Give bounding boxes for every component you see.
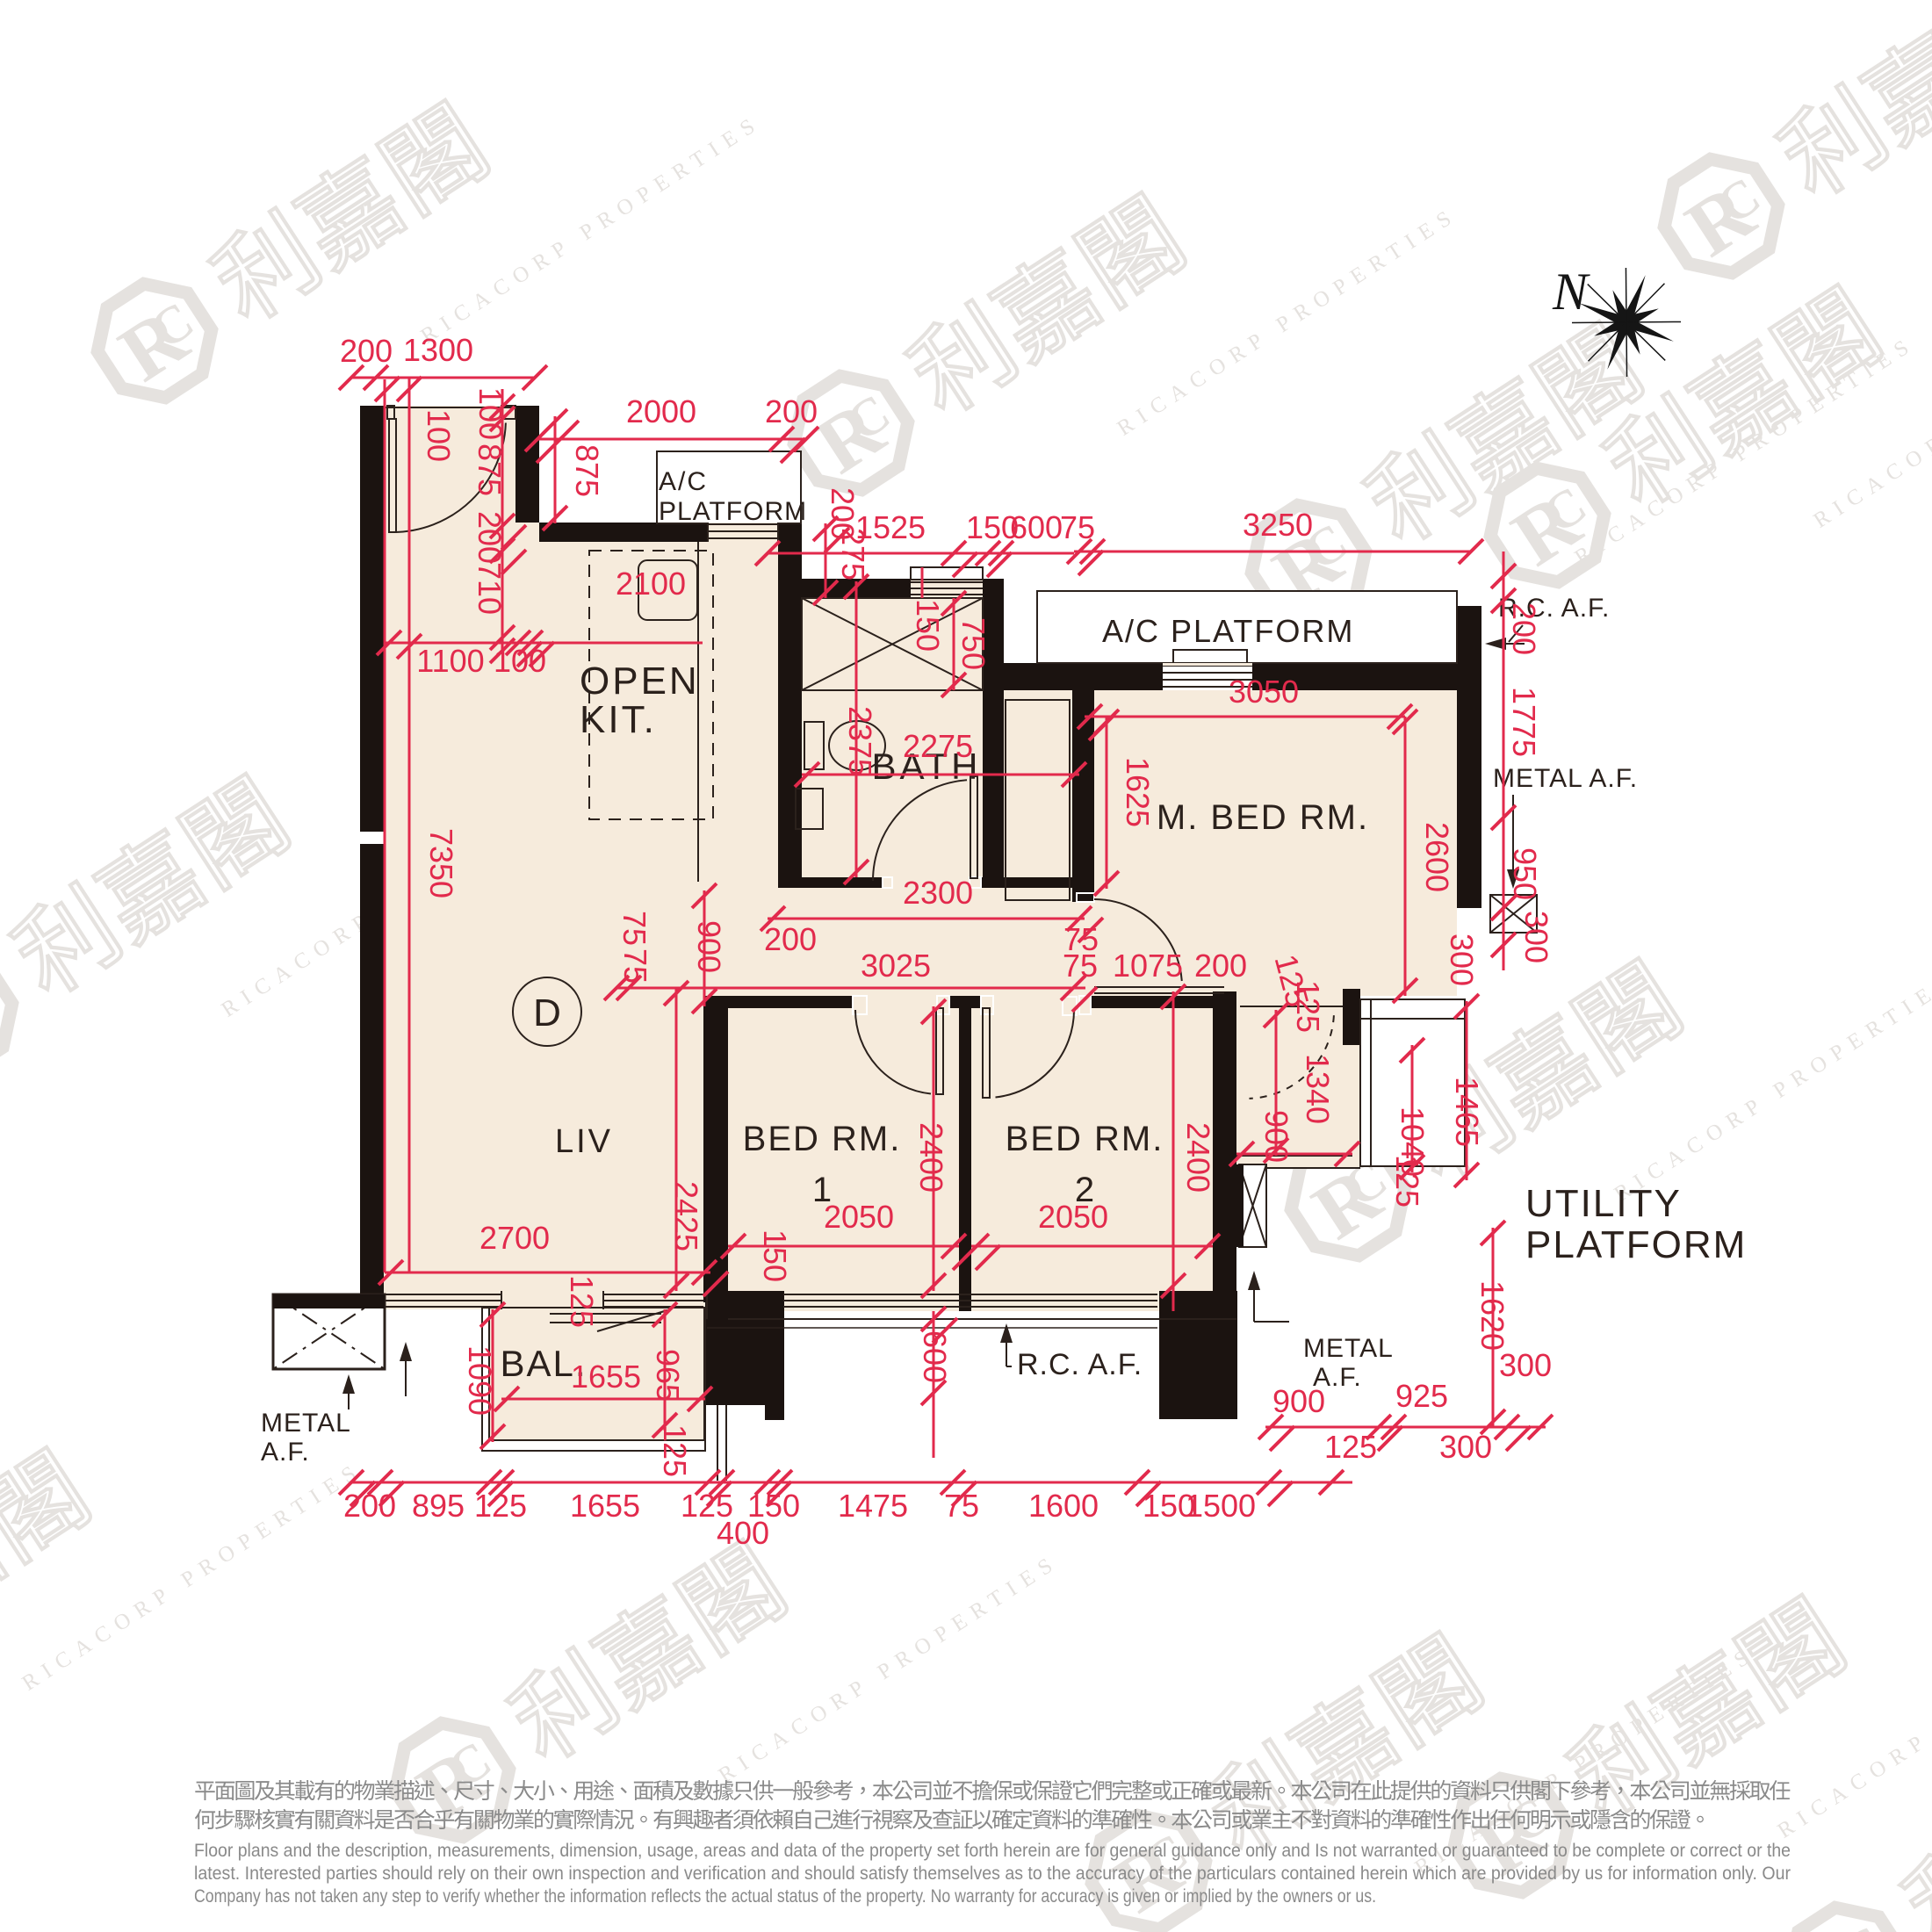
svg-text:75: 75 [616,911,652,946]
svg-text:125: 125 [657,1424,693,1477]
svg-text:150: 150 [757,1229,793,1282]
svg-text:1340: 1340 [1300,1054,1336,1124]
svg-text:METAL A.F.: METAL A.F. [1493,764,1638,793]
svg-text:latest. Interested parties sho: latest. Interested parties should rely o… [194,1864,1791,1884]
svg-text:600: 600 [1010,509,1063,545]
svg-text:7350: 7350 [423,828,459,898]
svg-text:200: 200 [1194,948,1247,984]
svg-text:2000: 2000 [626,393,696,429]
svg-text:BED RM.: BED RM. [1006,1120,1164,1158]
svg-text:M. BED RM.: M. BED RM. [1157,798,1369,837]
svg-text:900: 900 [691,920,727,973]
svg-text:1655: 1655 [571,1359,641,1395]
svg-text:A.F.: A.F. [261,1438,310,1467]
svg-text:1600: 1600 [1028,1488,1099,1524]
svg-text:710: 710 [472,562,508,615]
svg-text:1625: 1625 [1120,757,1156,827]
svg-text:N: N [1552,263,1590,321]
svg-text:2275: 2275 [903,728,973,764]
svg-text:R.C. A.F.: R.C. A.F. [1017,1348,1143,1381]
svg-text:965: 965 [650,1349,686,1402]
svg-text:METAL: METAL [1303,1334,1394,1363]
svg-text:900: 900 [1272,1383,1325,1419]
svg-text:1500: 1500 [1186,1488,1256,1524]
svg-text:200: 200 [764,921,817,957]
svg-text:200: 200 [1506,602,1542,655]
svg-text:300: 300 [1444,934,1480,986]
svg-text:875: 875 [569,444,605,497]
svg-text:1090: 1090 [462,1345,498,1416]
svg-text:LIV: LIV [555,1123,613,1160]
svg-text:75: 75 [1063,948,1098,984]
svg-text:75: 75 [944,1488,979,1524]
svg-text:2700: 2700 [479,1220,550,1256]
svg-text:300: 300 [1518,911,1554,963]
svg-text:METAL: METAL [261,1409,351,1438]
svg-text:200: 200 [340,333,393,369]
svg-text:OPEN: OPEN [580,660,700,703]
svg-text:Floor plans and the descriptio: Floor plans and the description, measure… [194,1841,1791,1861]
svg-text:2050: 2050 [824,1199,894,1235]
svg-text:PLATFORM: PLATFORM [659,497,807,526]
svg-text:125: 125 [1324,1429,1377,1465]
svg-text:2300: 2300 [903,875,973,911]
svg-text:75: 75 [617,948,653,984]
svg-text:125: 125 [1389,1155,1425,1207]
svg-text:1620: 1620 [1474,1280,1510,1351]
svg-text:2375: 2375 [842,706,878,776]
svg-text:PLATFORM: PLATFORM [1525,1223,1747,1266]
svg-text:KIT.: KIT. [580,698,657,741]
svg-text:1100: 1100 [416,643,484,679]
svg-text:875: 875 [472,443,508,496]
svg-text:900: 900 [1258,1110,1294,1163]
svg-text:3250: 3250 [1243,507,1313,543]
svg-text:1465: 1465 [1449,1077,1485,1147]
svg-text:1655: 1655 [570,1488,640,1524]
svg-text:D: D [533,991,561,1034]
svg-text:200: 200 [765,393,818,429]
svg-text:275: 275 [835,528,871,580]
svg-text:1475: 1475 [838,1488,908,1524]
svg-text:UTILITY: UTILITY [1525,1182,1682,1225]
svg-text:3025: 3025 [861,948,931,984]
svg-text:200: 200 [343,1488,396,1524]
svg-text:2600: 2600 [1419,822,1455,892]
svg-text:3050: 3050 [1229,674,1299,710]
svg-text:925: 925 [1395,1378,1448,1414]
svg-text:300: 300 [1499,1347,1552,1383]
svg-text:A/C PLATFORM: A/C PLATFORM [1102,613,1354,649]
svg-text:1075: 1075 [1113,948,1183,984]
svg-text:2050: 2050 [1038,1199,1108,1235]
svg-text:1775: 1775 [1506,687,1542,757]
svg-text:150: 150 [910,599,946,652]
svg-text:750: 750 [955,617,991,670]
svg-text:BED RM.: BED RM. [743,1120,902,1158]
svg-text:200: 200 [472,511,508,564]
svg-text:100: 100 [472,387,508,440]
svg-text:2425: 2425 [668,1181,704,1251]
svg-text:950: 950 [1507,847,1543,900]
svg-text:125: 125 [474,1488,527,1524]
svg-text:A/C: A/C [659,467,708,496]
svg-text:100: 100 [421,409,457,462]
svg-text:2400: 2400 [1180,1122,1216,1193]
svg-text:2100: 2100 [616,566,686,602]
svg-text:600: 600 [917,1330,953,1383]
svg-text:1300: 1300 [403,332,473,368]
svg-text:300: 300 [1439,1429,1492,1465]
svg-text:895: 895 [412,1488,465,1524]
svg-text:400: 400 [717,1515,769,1551]
svg-text:125: 125 [564,1275,600,1328]
svg-text:Company has not taken any step: Company has not taken any step to verify… [194,1886,1376,1907]
svg-text:2400: 2400 [913,1122,949,1193]
